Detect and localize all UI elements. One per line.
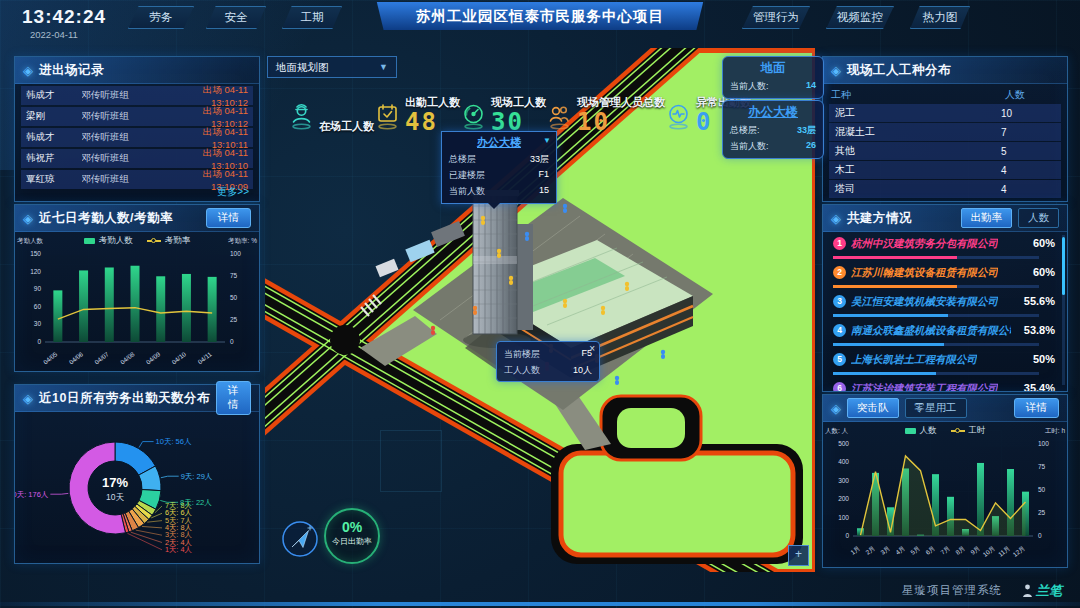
worker-type: 泥工 bbox=[835, 106, 1001, 120]
clock: 13:42:24 2022-04-11 bbox=[22, 6, 106, 40]
table-row: 其他5 bbox=[829, 142, 1061, 160]
table-row: 木工4 bbox=[829, 161, 1061, 179]
stat-label: 现场工人数 bbox=[491, 97, 546, 108]
diamond-icon: ◈ bbox=[23, 392, 33, 405]
record-name: 韩祝芹 bbox=[26, 152, 82, 165]
tooltip-row: 已建楼层F1 bbox=[449, 169, 549, 182]
worker-type: 混凝土工 bbox=[835, 125, 1001, 139]
tab-attendance-rate[interactable]: 出勤率 bbox=[961, 208, 1013, 228]
rank-badge: 1 bbox=[833, 237, 846, 250]
legend-item: 考勤人数 bbox=[84, 235, 133, 247]
record-group: 邓传听班组 bbox=[82, 152, 173, 165]
svg-text:100: 100 bbox=[838, 514, 849, 521]
brand-logo-text: 兰笔 bbox=[1036, 582, 1062, 600]
worker-count: 4 bbox=[1001, 165, 1055, 176]
squad-panel: ◈ 突击队 零星用工 详情 人数工时 人数: 人工时: h01002003004… bbox=[822, 394, 1068, 568]
partner-value: 55.6% bbox=[1024, 295, 1055, 307]
map-view-select-label: 地面规划图 bbox=[276, 61, 329, 73]
diamond-icon: ◈ bbox=[23, 64, 33, 77]
floor-card: 办公大楼总楼层:33层当前人数:26 bbox=[722, 100, 824, 159]
stat-text: 现场工人数30 bbox=[491, 97, 546, 134]
close-icon[interactable]: × bbox=[589, 343, 595, 354]
col-type: 工种 bbox=[831, 88, 1005, 102]
panel-title: 近七日考勤人数/考勤率 bbox=[39, 210, 173, 227]
svg-text:50: 50 bbox=[1038, 486, 1046, 493]
pulse-icon bbox=[665, 101, 692, 134]
legend-line-dot bbox=[151, 238, 156, 243]
svg-text:25: 25 bbox=[1038, 509, 1046, 516]
legend-bar-swatch bbox=[905, 428, 916, 434]
panel-title: 近10日所有劳务出勤天数分布 bbox=[39, 390, 210, 407]
panel-title: 现场工人工种分布 bbox=[847, 62, 951, 79]
record-group: 邓传听班组 bbox=[82, 173, 173, 186]
diamond-icon: ◈ bbox=[831, 212, 841, 225]
tab-heatmap[interactable]: 热力图 bbox=[910, 6, 970, 29]
panel-title: 共建方情况 bbox=[847, 210, 912, 227]
svg-text:75: 75 bbox=[230, 272, 238, 279]
diamond-icon: ◈ bbox=[831, 64, 841, 77]
svg-text:6月: 6月 bbox=[924, 544, 937, 556]
stat-label: 在场工人数 bbox=[319, 121, 374, 132]
tab-labor[interactable]: 劳务 bbox=[128, 6, 194, 29]
site-stat: 现场工人数30 bbox=[460, 97, 546, 134]
record-row: 梁刚邓传听班组出场 04-11 13:10:12 bbox=[21, 107, 253, 126]
progress-fill bbox=[833, 372, 936, 375]
legend-label: 考勤人数 bbox=[99, 235, 133, 247]
svg-text:4月: 4月 bbox=[894, 544, 907, 556]
tooltip-value: 33层 bbox=[530, 153, 549, 166]
clock-date: 2022-04-11 bbox=[22, 29, 106, 40]
legend-label: 考勤率 bbox=[165, 235, 191, 247]
svg-text:04/10: 04/10 bbox=[170, 350, 187, 366]
progress-fill bbox=[833, 256, 957, 259]
record-row: 韩成才邓传听班组出场 04-11 13:10:11 bbox=[21, 128, 253, 147]
legend-line-swatch bbox=[147, 240, 161, 242]
chart-legend: 考勤人数考勤率 bbox=[15, 235, 259, 247]
building-tooltip: 办公大楼 ▼ 总楼层33层已建楼层F1当前人数15 bbox=[441, 131, 557, 204]
worker-type: 塔司 bbox=[835, 182, 1001, 196]
svg-text:11月: 11月 bbox=[997, 544, 1012, 558]
detail-button[interactable]: 详情 bbox=[216, 381, 251, 415]
table-row: 泥工10 bbox=[829, 104, 1061, 122]
brand-logo: 兰笔 bbox=[1022, 582, 1062, 600]
partner-name: 吴江恒安建筑机械安装有限公司 bbox=[851, 295, 998, 309]
svg-text:3月: 3月 bbox=[879, 544, 892, 556]
page-title: 苏州工业园区恒泰市民服务中心项目 bbox=[370, 2, 710, 30]
record-group: 邓传听班组 bbox=[82, 131, 173, 144]
distribution-panel: ◈ 近10日所有劳务出勤天数分布 详情 10天: 56人9天: 29人8天: 2… bbox=[14, 384, 260, 564]
svg-text:10天: 10天 bbox=[106, 492, 124, 502]
svg-text:10月: 10月 bbox=[981, 544, 996, 559]
diamond-icon: ◈ bbox=[831, 402, 841, 415]
calendar-check-icon bbox=[374, 101, 401, 134]
rank-badge: 3 bbox=[833, 295, 846, 308]
tab-schedule[interactable]: 工期 bbox=[282, 6, 342, 29]
legend-bar-swatch bbox=[84, 238, 95, 244]
floor-card-row: 当前人数:26 bbox=[730, 140, 816, 153]
table-row: 混凝土工7 bbox=[829, 123, 1061, 141]
stat-text: 现场管理人员总数10 bbox=[577, 97, 665, 134]
svg-text:04/06: 04/06 bbox=[67, 350, 84, 366]
tooltip-label: 总楼层 bbox=[449, 153, 476, 166]
partners-panel: ◈ 共建方情况 出勤率 人数 1杭州中汉建筑劳务分包有限公司60%2江苏川翰建筑… bbox=[822, 204, 1068, 392]
tooltip-value: 15 bbox=[539, 185, 549, 198]
svg-text:0: 0 bbox=[1038, 532, 1042, 539]
site-stat: 出勤工人数48 bbox=[374, 97, 460, 134]
floor-card-label: 总楼层: bbox=[730, 124, 760, 137]
partner-name: 杭州中汉建筑劳务分包有限公司 bbox=[851, 237, 998, 251]
partner-item: 3吴江恒安建筑机械安装有限公司55.6% bbox=[833, 295, 1057, 319]
svg-text:04/11: 04/11 bbox=[196, 350, 213, 365]
progress-fill bbox=[833, 343, 944, 346]
partner-name: 江苏法诒建筑安装工程有限公司 bbox=[851, 382, 998, 392]
svg-text:50: 50 bbox=[230, 294, 238, 301]
tab-video-monitor[interactable]: 视频监控 bbox=[826, 6, 894, 29]
tab-assault-team[interactable]: 突击队 bbox=[847, 398, 899, 418]
floor-tooltip: × 当前楼层F5工人人数10人 bbox=[496, 341, 600, 382]
svg-text:400: 400 bbox=[838, 458, 849, 465]
floor-card: 地面当前人数:14 bbox=[722, 56, 824, 99]
detail-button[interactable]: 详情 bbox=[1014, 398, 1059, 418]
progress-track bbox=[833, 372, 1039, 375]
partner-name: 江苏川翰建筑设备租赁有限公司 bbox=[851, 266, 998, 280]
floor-card-title[interactable]: 办公大楼 bbox=[730, 104, 816, 121]
distribution-donut-chart: 10天: 56人9天: 29人8天: 22人7天: 8人6天: 6人5天: 7人… bbox=[15, 412, 259, 562]
svg-text:0: 0 bbox=[230, 338, 234, 345]
svg-text:75: 75 bbox=[1038, 463, 1046, 470]
tooltip-row: 工人人数10人 bbox=[504, 364, 592, 377]
person-logo-icon bbox=[1022, 584, 1033, 598]
svg-text:25: 25 bbox=[230, 316, 238, 323]
rate-value: 0% bbox=[326, 519, 378, 535]
record-name: 韩成才 bbox=[26, 131, 82, 144]
svg-text:100: 100 bbox=[1038, 440, 1049, 447]
clock-time: 13:42:24 bbox=[22, 6, 106, 28]
svg-text:04/08: 04/08 bbox=[119, 350, 136, 366]
attendance-chart: 考勤人数考勤率: %0306090120150025507510004/0504… bbox=[15, 232, 259, 372]
stat-text: 在场工人数 bbox=[319, 121, 374, 134]
rank-badge: 4 bbox=[833, 324, 846, 337]
svg-text:7月: 7月 bbox=[939, 544, 952, 556]
svg-text:60: 60 bbox=[34, 303, 42, 310]
svg-text:5月: 5月 bbox=[909, 544, 922, 556]
gauge-icon bbox=[460, 101, 487, 134]
record-name: 梁刚 bbox=[26, 110, 82, 123]
svg-text:300: 300 bbox=[838, 477, 849, 484]
rank-badge: 5 bbox=[833, 353, 846, 366]
record-name: 覃红琼 bbox=[26, 173, 82, 186]
svg-text:150: 150 bbox=[30, 250, 41, 257]
rate-label: 今日出勤率 bbox=[326, 536, 378, 547]
partner-value: 60% bbox=[1033, 237, 1055, 249]
floor-card-value: 14 bbox=[806, 80, 816, 93]
dashboard: 13:42:24 2022-04-11 劳务 安全 工期 苏州工业园区恒泰市民服… bbox=[0, 0, 1080, 608]
svg-text:120: 120 bbox=[30, 268, 41, 275]
svg-text:04/05: 04/05 bbox=[42, 350, 59, 366]
svg-text:200: 200 bbox=[838, 495, 849, 502]
tooltip-label: 已建楼层 bbox=[449, 169, 485, 182]
svg-text:90: 90 bbox=[34, 285, 42, 292]
bottom-accent-bar bbox=[0, 602, 1080, 606]
today-attendance-rate: 0% 今日出勤率 bbox=[324, 508, 380, 564]
svg-text:0: 0 bbox=[37, 338, 41, 345]
partner-name: 南通众联鑫盛机械设备租赁有限公司 bbox=[851, 324, 1011, 338]
record-row: 韩成才邓传听班组出场 04-11 13:10:12 bbox=[21, 86, 253, 105]
col-count: 人数 bbox=[1005, 88, 1059, 102]
partner-value: 60% bbox=[1033, 266, 1055, 278]
chart-legend: 人数工时 bbox=[823, 425, 1067, 437]
floor-card-value: 26 bbox=[806, 140, 816, 153]
legend-item: 工时 bbox=[951, 425, 986, 437]
scrollbar-thumb[interactable] bbox=[1062, 237, 1065, 295]
partner-item: 2江苏川翰建筑设备租赁有限公司60% bbox=[833, 266, 1057, 290]
monthly-chart: 人数: 人工时: h010020030040050002550751001月2月… bbox=[823, 422, 1067, 566]
svg-text:30: 30 bbox=[34, 320, 42, 327]
progress-track bbox=[833, 285, 1039, 288]
chevron-down-icon[interactable]: ▼ bbox=[543, 136, 551, 145]
svg-text:9月: 9月 bbox=[969, 544, 982, 556]
tooltip-row: 当前楼层F5 bbox=[504, 348, 592, 361]
worker-count: 7 bbox=[1001, 127, 1055, 138]
legend-label: 工时 bbox=[969, 425, 986, 437]
legend-label: 人数 bbox=[920, 425, 937, 437]
worker-type: 木工 bbox=[835, 163, 1001, 177]
svg-text:2月: 2月 bbox=[864, 544, 877, 556]
progress-fill bbox=[833, 285, 957, 288]
more-link[interactable]: 更多>> bbox=[217, 185, 249, 199]
record-name: 韩成才 bbox=[26, 89, 82, 102]
stat-text: 出勤工人数48 bbox=[405, 97, 460, 134]
svg-text:9天: 29人: 9天: 29人 bbox=[181, 472, 213, 481]
floor-card-title: 地面 bbox=[730, 60, 816, 77]
legend-item: 考勤率 bbox=[147, 235, 191, 247]
entry-exit-panel: ◈ 进出场记录 韩成才邓传听班组出场 04-11 13:10:12梁刚邓传听班组… bbox=[14, 56, 260, 202]
svg-text:0天: 176人: 0天: 176人 bbox=[15, 490, 49, 499]
partner-item: 5上海长凯岩土工程有限公司50% bbox=[833, 353, 1057, 377]
tooltip-value: 10人 bbox=[573, 364, 592, 377]
legend-item: 人数 bbox=[905, 425, 937, 437]
svg-text:8月: 8月 bbox=[954, 544, 967, 556]
progress-track bbox=[833, 314, 1039, 317]
tab-management-behavior[interactable]: 管理行为 bbox=[742, 6, 810, 29]
tab-safety[interactable]: 安全 bbox=[206, 6, 266, 29]
tooltip-label: 工人人数 bbox=[504, 364, 540, 377]
floor-card-label: 当前人数: bbox=[730, 140, 769, 153]
table-header: 工种 人数 bbox=[831, 86, 1059, 103]
partner-name: 上海长凯岩土工程有限公司 bbox=[851, 353, 977, 367]
floor-card-label: 当前人数: bbox=[730, 80, 769, 93]
tooltip-row: 当前人数15 bbox=[449, 185, 549, 198]
attendance-panel: ◈ 近七日考勤人数/考勤率 详情 考勤人数考勤率 考勤人数考勤率: %03060… bbox=[14, 204, 260, 372]
svg-text:1天: 4人: 1天: 4人 bbox=[165, 545, 192, 554]
people-icon bbox=[546, 101, 573, 134]
progress-track bbox=[833, 343, 1039, 346]
tooltip-label: 当前楼层 bbox=[504, 348, 540, 361]
progress-track bbox=[833, 256, 1039, 259]
detail-button[interactable]: 详情 bbox=[206, 208, 251, 228]
rank-badge: 6 bbox=[833, 382, 846, 392]
svg-text:500: 500 bbox=[838, 440, 849, 447]
diamond-icon: ◈ bbox=[23, 212, 33, 225]
svg-text:12月: 12月 bbox=[1011, 544, 1026, 559]
stat-value: 10 bbox=[577, 110, 665, 134]
partner-value: 35.4% bbox=[1024, 382, 1055, 392]
partner-item: 6江苏法诒建筑安装工程有限公司35.4% bbox=[833, 382, 1057, 392]
tab-casual-labor[interactable]: 零星用工 bbox=[905, 398, 967, 418]
partner-value: 50% bbox=[1033, 353, 1055, 365]
panel-title: 进出场记录 bbox=[39, 62, 104, 79]
worker-count: 4 bbox=[1001, 184, 1055, 195]
compass-control[interactable] bbox=[281, 520, 319, 558]
legend-line-swatch bbox=[951, 430, 965, 432]
worker-count: 5 bbox=[1001, 146, 1055, 157]
svg-text:1月: 1月 bbox=[849, 544, 862, 556]
tooltip-label: 当前人数 bbox=[449, 185, 485, 198]
fullscreen-icon[interactable]: + bbox=[788, 545, 809, 566]
worker-count: 10 bbox=[1001, 108, 1055, 119]
progress-fill bbox=[833, 314, 948, 317]
svg-text:04/07: 04/07 bbox=[93, 350, 110, 366]
partner-value: 53.8% bbox=[1024, 324, 1055, 336]
site-stat: 在场工人数 bbox=[288, 101, 374, 134]
site-stat: 现场管理人员总数10 bbox=[546, 97, 665, 134]
partner-item: 4南通众联鑫盛机械设备租赁有限公司53.8% bbox=[833, 324, 1057, 348]
floor-card-value: 33层 bbox=[797, 124, 816, 137]
tab-headcount[interactable]: 人数 bbox=[1018, 208, 1059, 228]
svg-text:17%: 17% bbox=[102, 475, 128, 490]
chevron-down-icon: ▼ bbox=[379, 57, 388, 77]
worker-icon bbox=[288, 101, 315, 134]
worker-type: 其他 bbox=[835, 144, 1001, 158]
record-group: 邓传听班组 bbox=[82, 89, 173, 102]
floor-card-row: 总楼层:33层 bbox=[730, 124, 816, 137]
floor-card-row: 当前人数:14 bbox=[730, 80, 816, 93]
legend-line-dot bbox=[955, 428, 960, 433]
table-row: 塔司4 bbox=[829, 180, 1061, 198]
building-tooltip-title[interactable]: 办公大楼 bbox=[449, 135, 549, 150]
stat-label: 出勤工人数 bbox=[405, 97, 460, 108]
stat-label: 现场管理人员总数 bbox=[577, 97, 665, 108]
system-name: 星璇项目管理系统 bbox=[902, 583, 1002, 598]
tooltip-row: 总楼层33层 bbox=[449, 153, 549, 166]
map-view-select[interactable]: 地面规划图 ▼ bbox=[267, 56, 397, 78]
worker-type-panel: ◈ 现场工人工种分布 工种 人数 泥工10混凝土工7其他5木工4塔司4 bbox=[822, 56, 1068, 202]
tooltip-value: F1 bbox=[538, 169, 549, 182]
svg-text:04/09: 04/09 bbox=[145, 350, 162, 366]
rank-badge: 2 bbox=[833, 266, 846, 279]
svg-text:10天: 56人: 10天: 56人 bbox=[156, 437, 192, 446]
record-row: 韩祝芹邓传听班组出场 04-11 13:10:10 bbox=[21, 149, 253, 168]
record-group: 邓传听班组 bbox=[82, 110, 173, 123]
partner-item: 1杭州中汉建筑劳务分包有限公司60% bbox=[833, 237, 1057, 261]
site-stats-row: 在场工人数出勤工人数48现场工人数30现场管理人员总数10异常出勤数0 bbox=[288, 80, 740, 134]
svg-text:0: 0 bbox=[845, 532, 849, 539]
svg-text:100: 100 bbox=[230, 250, 241, 257]
